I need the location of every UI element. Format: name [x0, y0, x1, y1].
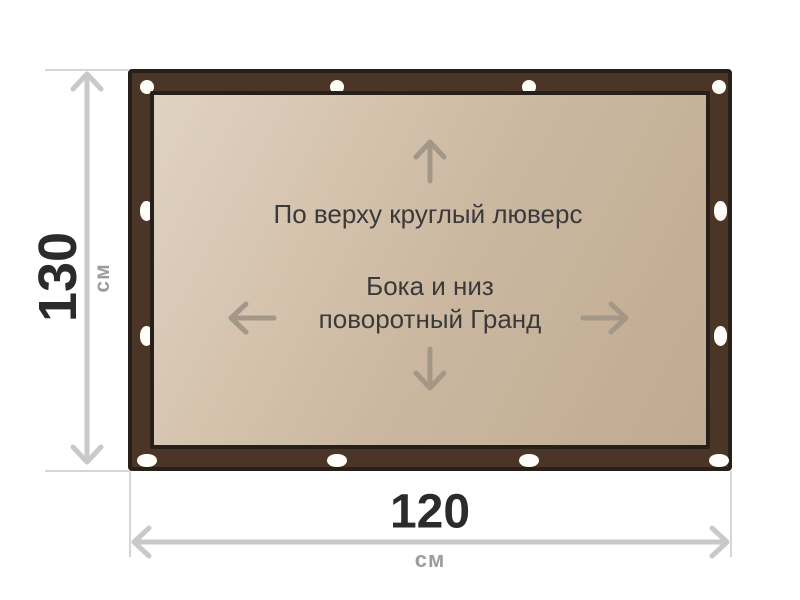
arrow-down-icon: [408, 344, 452, 394]
width-value: 120: [390, 485, 470, 540]
height-unit: см: [91, 263, 115, 292]
height-value: 130: [27, 232, 89, 322]
grommet-oval-icon: [137, 454, 157, 467]
grommet-oval-icon: [709, 454, 729, 467]
note-sides-bottom-line2: поворотный Гранд: [319, 303, 542, 336]
grommet-oval-icon: [714, 201, 727, 221]
note-top-grommets: По верху круглый люверс: [274, 198, 583, 231]
grommet-oval-icon: [714, 326, 727, 346]
note-sides-bottom: Бока и низ поворотный Гранд: [319, 270, 542, 336]
grommet-oval-icon: [327, 454, 347, 467]
product-dimension-diagram: По верху круглый люверс Бока и низ повор…: [0, 0, 800, 600]
arrow-right-icon: [578, 296, 632, 340]
arrow-left-icon: [225, 296, 279, 340]
note-sides-bottom-line1: Бока и низ: [319, 270, 542, 303]
width-unit: см: [415, 547, 446, 573]
height-dim-tick-bottom: [45, 470, 129, 472]
grommet-round-icon: [712, 80, 726, 94]
grommet-oval-icon: [519, 454, 539, 467]
arrow-up-icon: [408, 136, 452, 186]
